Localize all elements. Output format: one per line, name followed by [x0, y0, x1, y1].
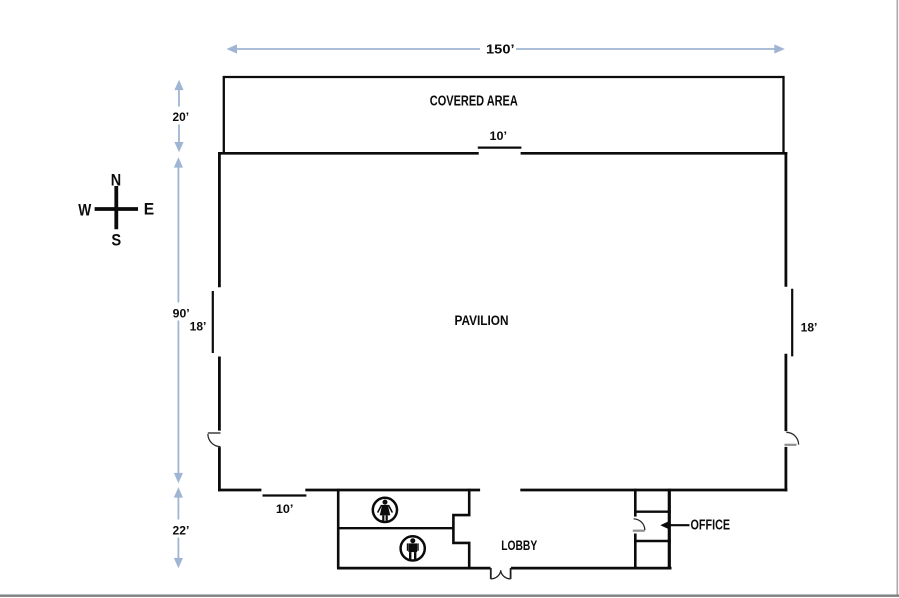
svg-text:18’: 18’	[190, 320, 207, 334]
svg-text:LOBBY: LOBBY	[501, 538, 537, 553]
svg-text:OFFICE: OFFICE	[691, 518, 731, 534]
svg-text:PAVILION: PAVILION	[455, 313, 509, 329]
svg-text:10’: 10’	[490, 129, 508, 143]
svg-text:N: N	[111, 171, 121, 189]
svg-text:W: W	[78, 201, 91, 219]
svg-text:90’: 90’	[173, 306, 190, 320]
svg-text:18’: 18’	[801, 320, 818, 334]
svg-text:10’: 10’	[276, 502, 294, 516]
svg-text:20’: 20’	[173, 110, 190, 124]
svg-text:150’: 150’	[486, 42, 515, 57]
svg-text:E: E	[144, 201, 154, 219]
svg-text:COVERED AREA: COVERED AREA	[430, 94, 518, 110]
svg-text:S: S	[111, 232, 121, 250]
svg-text:22’: 22’	[173, 523, 190, 537]
